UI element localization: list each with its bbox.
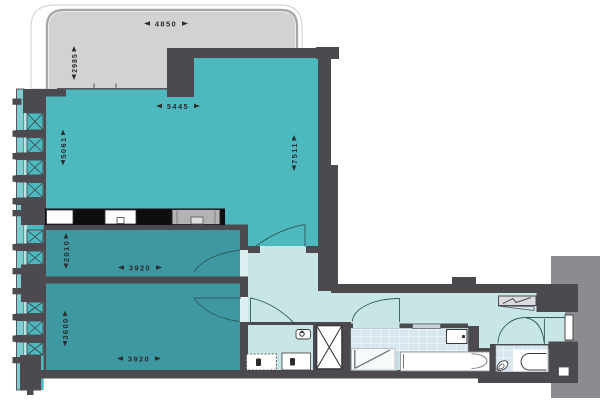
svg-text:3920: 3920 (128, 355, 150, 364)
svg-text:3920: 3920 (129, 264, 151, 273)
svg-text:4850: 4850 (155, 20, 177, 29)
svg-text:3600: 3600 (61, 317, 70, 339)
svg-text:5061: 5061 (59, 136, 68, 158)
svg-text:2985: 2985 (72, 53, 79, 73)
svg-text:2010: 2010 (62, 240, 71, 262)
svg-text:5445: 5445 (167, 102, 189, 111)
svg-text:7511: 7511 (290, 142, 299, 164)
